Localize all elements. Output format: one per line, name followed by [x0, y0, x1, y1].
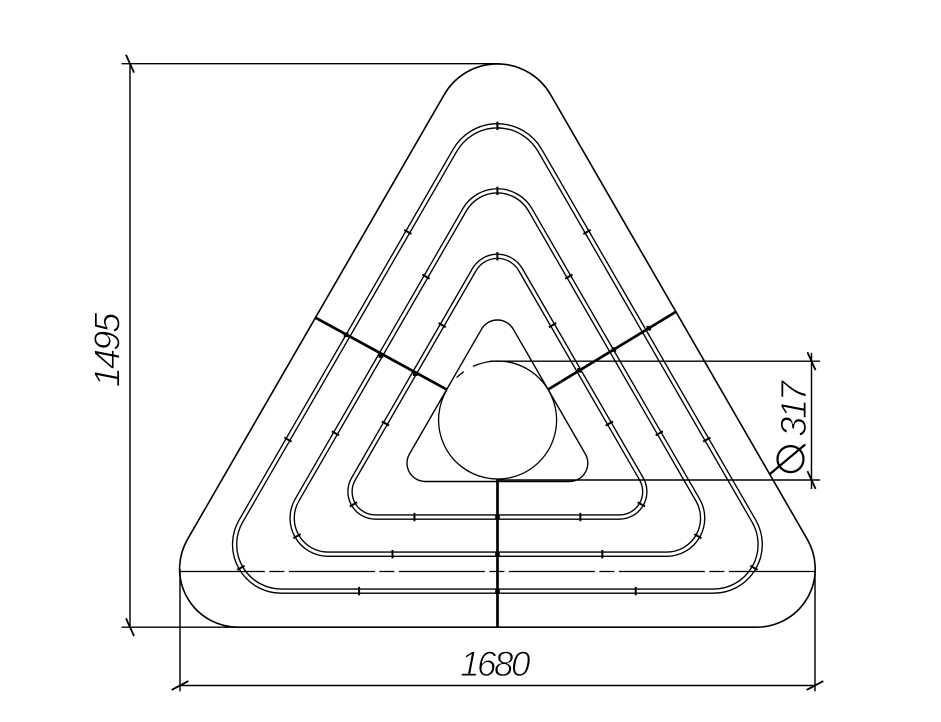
svg-text:1680: 1680 — [460, 645, 531, 684]
svg-text:317: 317 — [773, 379, 814, 437]
svg-text:1495: 1495 — [87, 312, 128, 387]
